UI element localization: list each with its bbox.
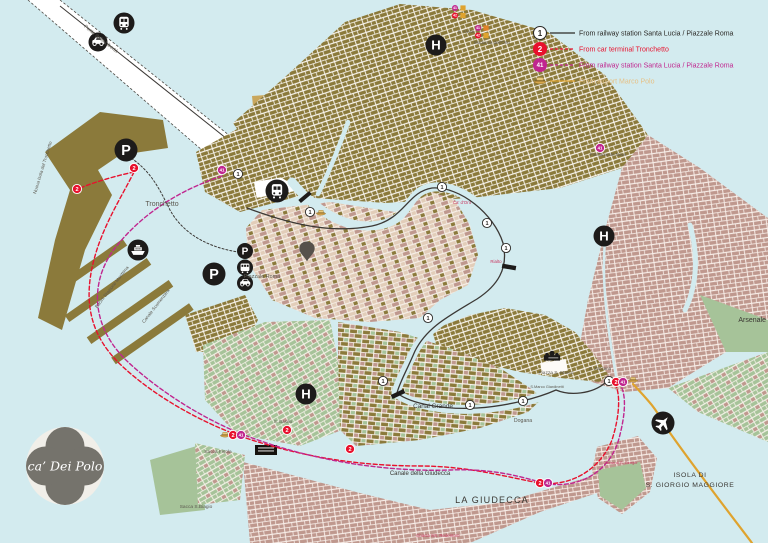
map-label-piazza-s-marco: Piazza S. Marco xyxy=(539,370,574,376)
parking-tronchetto-icon xyxy=(115,139,138,162)
map-label-s-zaccaria: S. Zaccaria xyxy=(589,366,612,371)
legend-label: From railway station Santa Lucia / Piazz… xyxy=(579,62,734,69)
svg-text:1: 1 xyxy=(308,210,311,216)
map-label-sacca-s-biagio: Sacca S.Biagio xyxy=(180,504,213,510)
map-label-s-giorgio-maggiore: S. GIORGIO MAGGIORE xyxy=(646,482,735,489)
svg-text:41: 41 xyxy=(537,63,544,69)
car-ferry-icon xyxy=(128,240,149,261)
map-label-piazzale-roma: Piazzale Roma xyxy=(244,274,280,280)
svg-text:2: 2 xyxy=(75,187,78,193)
legend-label: From railway station Santa Lucia / Piazz… xyxy=(579,30,734,37)
map-label-isola-di: ISOLA DI xyxy=(673,472,706,479)
map-svg: P H xyxy=(0,0,768,543)
map-label-arsenale: Arsenale xyxy=(738,317,766,324)
map-label-sacca-fisola: Sacca Fisola xyxy=(204,449,232,455)
svg-text:41: 41 xyxy=(546,481,551,486)
svg-text:41: 41 xyxy=(239,433,244,438)
svg-text:2: 2 xyxy=(231,433,234,439)
svg-text:1: 1 xyxy=(381,379,384,385)
svg-text:2: 2 xyxy=(348,447,351,453)
vaporetto-stop-line1: 1 xyxy=(465,400,474,409)
vaporetto-stop-line1: 1 xyxy=(518,396,527,405)
svg-text:1: 1 xyxy=(538,29,543,38)
vaporetto-stop-line1: 1 xyxy=(378,376,387,385)
vaporetto-stop-line41: 41 xyxy=(618,377,627,386)
train-bridge-icon xyxy=(114,13,135,34)
map-label-s-basilio: S. Basilio xyxy=(274,419,293,424)
vaporetto-stop-line2: 2 xyxy=(345,444,354,453)
svg-text:41: 41 xyxy=(598,146,603,151)
parking-garage-icon xyxy=(203,263,226,286)
map-label-s-alvise: S. Alvise xyxy=(458,29,475,34)
svg-text:1: 1 xyxy=(521,399,524,405)
legend-label: From airport Marco Polo xyxy=(579,78,655,85)
vaporetto-stop-line1: 1 xyxy=(423,313,432,322)
vaporetto-stop-line1: 1 xyxy=(233,169,242,178)
svg-text:1: 1 xyxy=(485,221,488,227)
map-label-madonna-dell-orto: Madonna dell'Orto xyxy=(474,40,510,45)
svg-text:2: 2 xyxy=(285,428,288,434)
svg-text:2: 2 xyxy=(538,481,541,487)
vaporetto-stop-line1: 1 xyxy=(501,243,510,252)
vaporetto-stop-line1: 1 xyxy=(305,207,314,216)
airport-plane-icon xyxy=(652,412,675,435)
svg-text:41: 41 xyxy=(621,380,626,385)
train-station-icon xyxy=(266,180,289,203)
hospital-icon-castello xyxy=(594,226,615,247)
hospital-icon-cannaregio xyxy=(426,35,447,56)
svg-text:42: 42 xyxy=(476,34,480,38)
svg-text:1: 1 xyxy=(236,172,239,178)
hotel-logo: ca’ Dei Polo xyxy=(26,427,104,505)
logo-text: ca’ Dei Polo xyxy=(28,459,103,474)
map-label-chiesa-s-giorgio: Chiesa di S. Giorgio xyxy=(603,460,638,465)
map-label-canal-grande: Canal Grande xyxy=(413,403,453,410)
svg-text:41: 41 xyxy=(453,6,457,10)
map-label-dogana: Dogana xyxy=(514,418,532,424)
map-label-fondamente-nove: Fondamente Nove xyxy=(590,152,627,157)
map-label-tronchetto: Tronchetto xyxy=(145,201,178,208)
map-label-canale-della-giudecca: Canale della Giudecca xyxy=(390,471,451,477)
map-label-chiesa-ss-redentore: Chiesa SS. Redentore xyxy=(416,533,460,538)
parking-piazzale-roma-icon xyxy=(237,243,253,259)
hospital-icon-dorsoduro xyxy=(296,384,317,405)
svg-text:2: 2 xyxy=(538,45,543,54)
vaporetto-stop-line1: 1 xyxy=(437,182,446,191)
svg-text:41: 41 xyxy=(476,26,480,30)
svg-text:2: 2 xyxy=(132,166,135,172)
svg-text:1: 1 xyxy=(468,403,471,409)
svg-text:42: 42 xyxy=(453,14,457,18)
svg-text:1: 1 xyxy=(426,316,429,322)
map-label-ca-d-oro: Ca' d'Oro xyxy=(453,200,472,205)
vaporetto-stop-line2: 2 xyxy=(282,425,291,434)
vaporetto-stop-line41: 41 xyxy=(543,478,552,487)
map-label-la-giudecca: LA GIUDECCA xyxy=(455,495,529,505)
venice-tourist-map: P H xyxy=(0,0,768,543)
vaporetto-stop-line2: 2 xyxy=(129,163,138,172)
svg-text:1: 1 xyxy=(607,379,610,385)
svg-text:1: 1 xyxy=(504,246,507,252)
svg-text:2: 2 xyxy=(614,380,617,386)
vaporetto-stop-line2: 2 xyxy=(72,184,81,193)
vaporetto-stop-line1: 1 xyxy=(482,218,491,227)
legend-label: From car terminal Tronchetto xyxy=(579,46,669,53)
svg-text:41: 41 xyxy=(220,168,225,173)
vaporetto-stop-line41: 41 xyxy=(217,165,226,174)
map-label-rialto: Rialto xyxy=(490,259,502,264)
vaporetto-stop-line41: 41 xyxy=(236,430,245,439)
svg-text:1: 1 xyxy=(440,185,443,191)
map-label-s-marco-giardinetti: S.Marco Giardinetti xyxy=(530,384,563,389)
